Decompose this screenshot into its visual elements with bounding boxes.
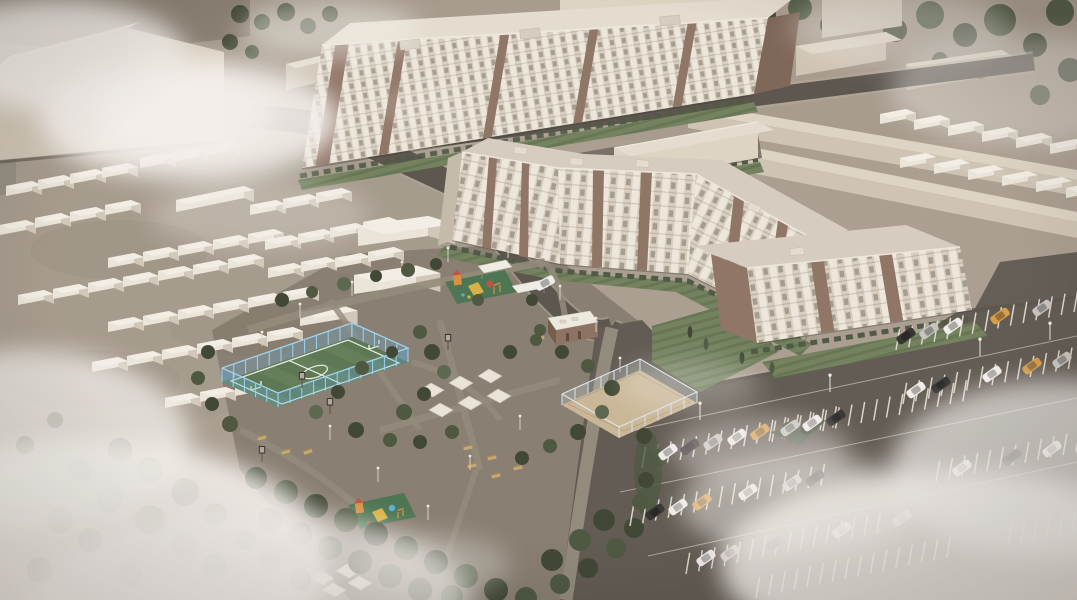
vignette <box>0 0 1077 600</box>
render-canvas <box>0 0 1077 600</box>
architectural-render <box>0 0 1077 600</box>
